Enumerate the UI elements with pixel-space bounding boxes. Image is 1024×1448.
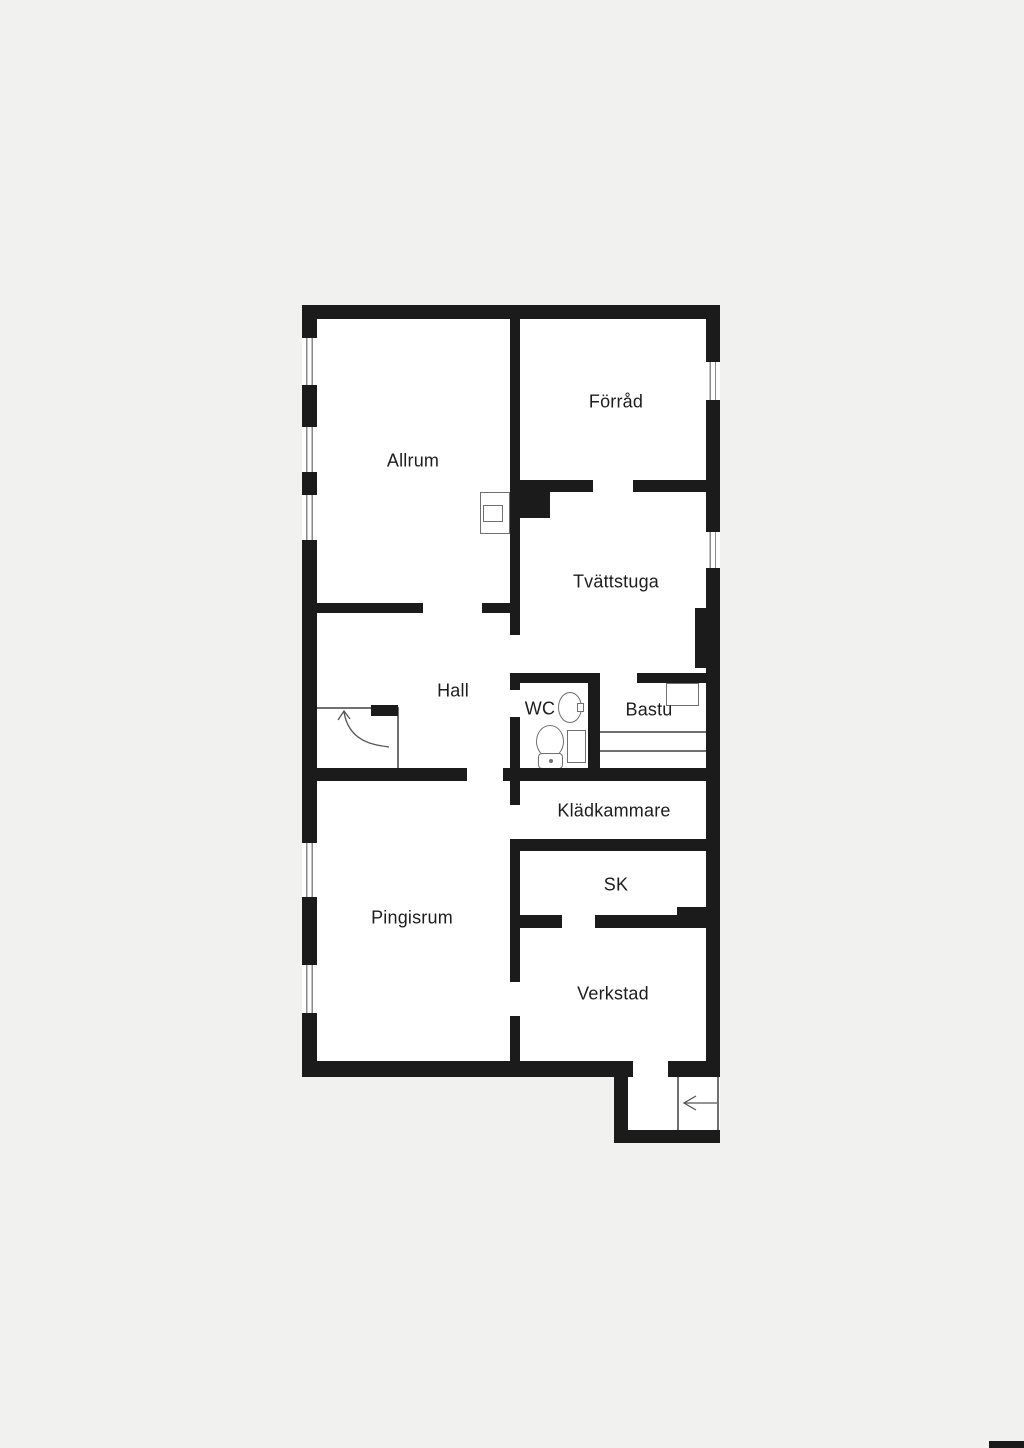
window [302,495,317,540]
wall-outer-left [302,305,317,338]
wall-outer-left [302,897,317,965]
wall-outer-bottom [668,1061,720,1077]
wall-sk-verkstad [518,915,562,928]
wall-allrum-hall [317,603,423,613]
wall-outer-right [706,568,720,1077]
wall-outer-right [706,305,720,362]
wall-outer-left [302,385,317,427]
window [302,965,317,1013]
wall-wc-top [520,673,600,683]
window [302,843,317,897]
room-label-hall: Hall [437,681,469,702]
wall-pillar-right [695,608,706,668]
wall-stair-stub [371,705,398,716]
window [302,338,317,385]
wall-wc-left [510,717,520,768]
window [706,362,720,400]
wall-outer-right [706,400,720,532]
wall-forrad-tvattstuga [633,480,706,492]
wall-outer-bottom [302,1061,633,1077]
wall-forrad-tvattstuga [520,480,593,492]
sauna-bench-line [600,750,706,752]
room-label-tvattstuga: Tvättstuga [573,572,659,593]
wall-wc-left-stub [510,673,520,690]
window [302,427,317,472]
sauna-bench-line [600,731,706,733]
wall-hall-pingisrum [317,768,467,781]
floor-plan: Allrum Förråd Tvättstuga Hall WC Bastu K… [0,0,1024,1448]
wall-kladkammare-sk [510,839,720,851]
fireplace-inner-icon [483,505,503,522]
wall-allrum-hall [482,603,510,613]
room-label-sk: SK [604,875,628,896]
wall-sk-verkstad [677,907,706,928]
room-label-forrad: Förråd [589,392,643,413]
room-label-verkstad: Verkstad [577,984,649,1005]
wall-wc-bastu [588,683,600,768]
room-label-bastu: Bastu [625,700,672,721]
stairs-edge-right [397,707,399,769]
watermark-fragment [989,1441,1024,1448]
wall-vestibule-bottom [614,1130,720,1143]
room-label-pingisrum: Pingisrum [371,908,453,929]
wall-outer-left [302,540,317,843]
room-label-kladkammare: Klädkammare [557,801,670,822]
toilet-button-icon [549,759,553,763]
wc-fixture-square [567,730,586,763]
wall-center-vertical [510,1016,520,1061]
sink-tap-icon [577,703,584,712]
wall-bastu-top [637,673,706,683]
wall-kladkammare-top [503,768,720,781]
wall-center-vertical [510,839,520,982]
wall-outer-top [302,305,720,319]
wall-outer-left [302,472,317,495]
wall-sk-verkstad [595,915,677,928]
window [706,532,720,568]
wall-center-vertical [510,319,520,635]
room-label-allrum: Allrum [387,451,439,472]
entry-arrow-icon [679,1094,719,1112]
wall-kladkammare-left [510,781,520,805]
room-label-wc: WC [525,699,555,720]
